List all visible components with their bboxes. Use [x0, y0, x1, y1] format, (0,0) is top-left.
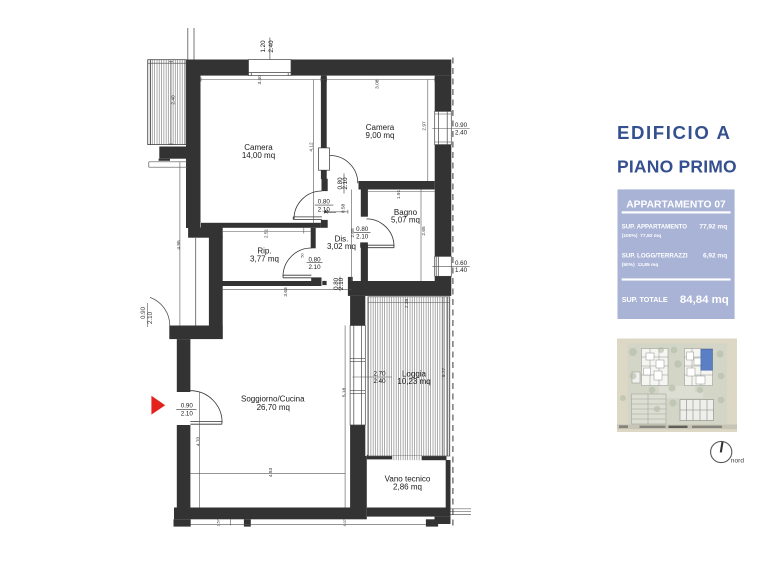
svg-text:9.77: 9.77	[441, 368, 447, 378]
svg-text:0.80: 0.80	[318, 199, 331, 206]
svg-text:5,07 mq: 5,07 mq	[391, 216, 420, 225]
svg-text:1.40: 1.40	[455, 267, 468, 274]
svg-text:2.10: 2.10	[147, 311, 154, 324]
svg-text:2.70: 2.70	[373, 370, 386, 377]
svg-text:2.51: 2.51	[264, 229, 270, 239]
svg-text:0.60: 0.60	[455, 260, 468, 267]
svg-text:4.70: 4.70	[196, 437, 202, 447]
svg-text:2.40: 2.40	[171, 95, 177, 105]
svg-text:SUP. LOGG/TERRAZZI: SUP. LOGG/TERRAZZI	[622, 252, 688, 259]
svg-text:2,86 mq: 2,86 mq	[393, 482, 422, 491]
svg-text:3.40: 3.40	[257, 75, 263, 85]
svg-text:4.12: 4.12	[309, 142, 315, 152]
svg-text:2.10: 2.10	[338, 277, 345, 290]
svg-text:1.91: 1.91	[396, 190, 402, 200]
svg-text:2.10: 2.10	[318, 206, 331, 213]
svg-text:(100%) 77,92 mq: (100%) 77,92 mq	[622, 233, 661, 239]
svg-text:4.07: 4.07	[343, 519, 347, 526]
svg-text:0.90: 0.90	[455, 122, 468, 129]
svg-text:3,77 mq: 3,77 mq	[250, 254, 279, 263]
svg-text:3.63: 3.63	[283, 287, 289, 297]
svg-text:0.58: 0.58	[341, 204, 347, 214]
svg-text:50: 50	[301, 253, 305, 257]
svg-text:2.40: 2.40	[373, 378, 386, 385]
svg-text:2.65: 2.65	[350, 228, 356, 238]
svg-text:3.08: 3.08	[374, 79, 380, 89]
svg-text:14,00 mq: 14,00 mq	[242, 151, 275, 160]
svg-text:nord: nord	[731, 458, 745, 465]
svg-text:2.10: 2.10	[342, 177, 349, 190]
svg-text:10,23 mq: 10,23 mq	[397, 377, 430, 386]
svg-text:0.80: 0.80	[356, 226, 369, 233]
svg-text:2.40: 2.40	[268, 40, 275, 53]
svg-text:2.97: 2.97	[421, 121, 427, 131]
svg-text:SUP. TOTALE: SUP. TOTALE	[622, 295, 668, 304]
svg-text:3,02 mq: 3,02 mq	[327, 242, 356, 251]
svg-text:PIANO PRIMO: PIANO PRIMO	[617, 157, 737, 177]
svg-text:9,00 mq: 9,00 mq	[366, 131, 395, 140]
svg-text:2.10: 2.10	[356, 233, 369, 240]
svg-text:77,92 mq: 77,92 mq	[699, 224, 727, 231]
svg-text:(50%) 13,85 mq: (50%) 13,85 mq	[622, 262, 659, 268]
svg-text:84,84 mq: 84,84 mq	[680, 294, 729, 306]
svg-text:6,92 mq: 6,92 mq	[703, 252, 727, 259]
svg-text:SUP. APPARTAMENTO: SUP. APPARTAMENTO	[622, 224, 688, 231]
svg-text:4.95: 4.95	[176, 240, 182, 250]
svg-text:0.90: 0.90	[181, 403, 194, 410]
svg-text:2.40: 2.40	[455, 130, 468, 137]
svg-text:EDIFICIO A: EDIFICIO A	[617, 122, 731, 143]
svg-text:APPARTAMENTO 07: APPARTAMENTO 07	[626, 199, 726, 210]
svg-text:4.93: 4.93	[268, 468, 274, 478]
svg-text:2.39: 2.39	[404, 299, 410, 309]
svg-text:26,70 mq: 26,70 mq	[257, 403, 290, 412]
svg-text:1.57: 1.57	[216, 519, 220, 526]
svg-text:1.20: 1.20	[260, 40, 267, 53]
svg-text:2.10: 2.10	[181, 411, 194, 418]
svg-text:5.18: 5.18	[341, 388, 347, 398]
svg-text:2.65: 2.65	[421, 226, 427, 236]
svg-text:2.10: 2.10	[308, 264, 321, 271]
svg-text:0.80: 0.80	[308, 256, 321, 263]
